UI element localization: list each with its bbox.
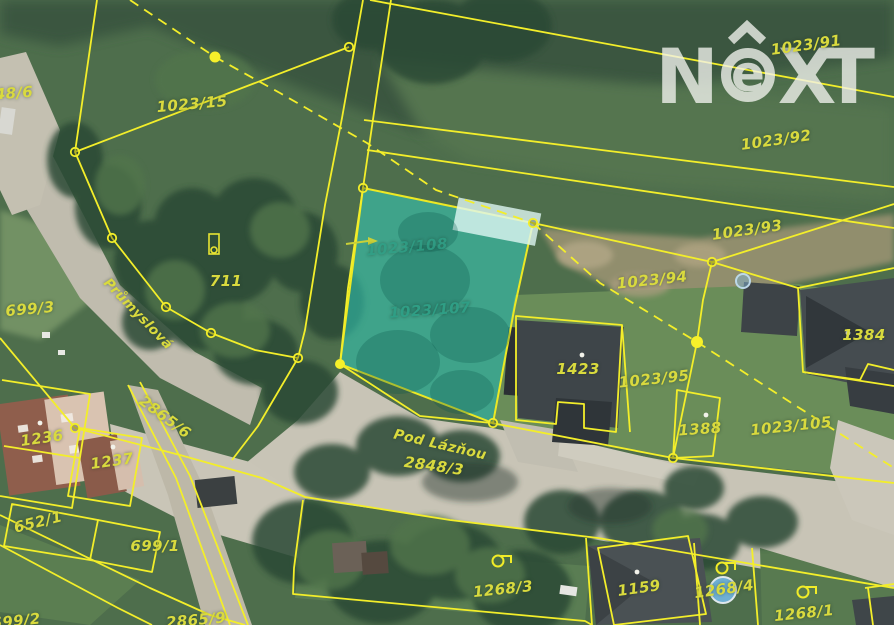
parcel-label-1023-94: 1023/94 xyxy=(616,267,688,292)
parcel-label-1023-92: 1023/92 xyxy=(740,126,813,154)
parcel-label-1023-91: 1023/91 xyxy=(770,31,843,59)
parcel-label-1023-105: 1023/105 xyxy=(749,413,832,439)
cadastral-map: N e X T 48/61023/151023/911023/921023/93… xyxy=(0,0,894,625)
parcel-label-1159: 1159 xyxy=(616,576,661,600)
parcel-label-2865-9: 2865/9 xyxy=(165,608,226,625)
labels-layer: 48/61023/151023/911023/921023/931023/941… xyxy=(0,0,894,625)
parcel-label-1023-95: 1023/95 xyxy=(618,366,690,391)
parcel-label-1023-108: 1023/108 xyxy=(365,234,448,259)
parcel-label-699-3: 699/3 xyxy=(5,298,56,320)
parcel-label-1268-1: 1268/1 xyxy=(773,601,835,625)
parcel-label-1384: 1384 xyxy=(842,326,885,344)
parcel-label-1423: 1423 xyxy=(556,360,599,378)
parcel-label-1023-93: 1023/93 xyxy=(711,216,784,244)
parcel-label-699-2: 699/2 xyxy=(0,609,41,625)
parcel-label-711: 711 xyxy=(210,272,243,290)
parcel-label-1023-15: 1023/15 xyxy=(156,92,228,116)
parcel-label-1268-3: 1268/3 xyxy=(472,577,534,601)
parcel-label-652-1: 652/1 xyxy=(12,507,64,536)
parcel-label-2865-6: 2865/6 xyxy=(136,392,195,443)
parcel-label-48-6: 48/6 xyxy=(0,83,34,104)
parcel-label-699-1: 699/1 xyxy=(130,537,179,555)
parcel-label-1236: 1236 xyxy=(19,426,64,450)
parcel-label-1237: 1237 xyxy=(89,449,134,473)
parcel-label-1023-107: 1023/107 xyxy=(389,298,472,322)
street-label-prumyslova: Průmyslová xyxy=(100,275,176,353)
parcel-label-1388: 1388 xyxy=(678,419,723,440)
parcel-label-2848-3: 2848/3 xyxy=(403,453,465,479)
street-label-pod-laznou: Pod Lázňou xyxy=(392,427,488,464)
parcel-label-1268-4: 1268/4 xyxy=(693,576,755,602)
